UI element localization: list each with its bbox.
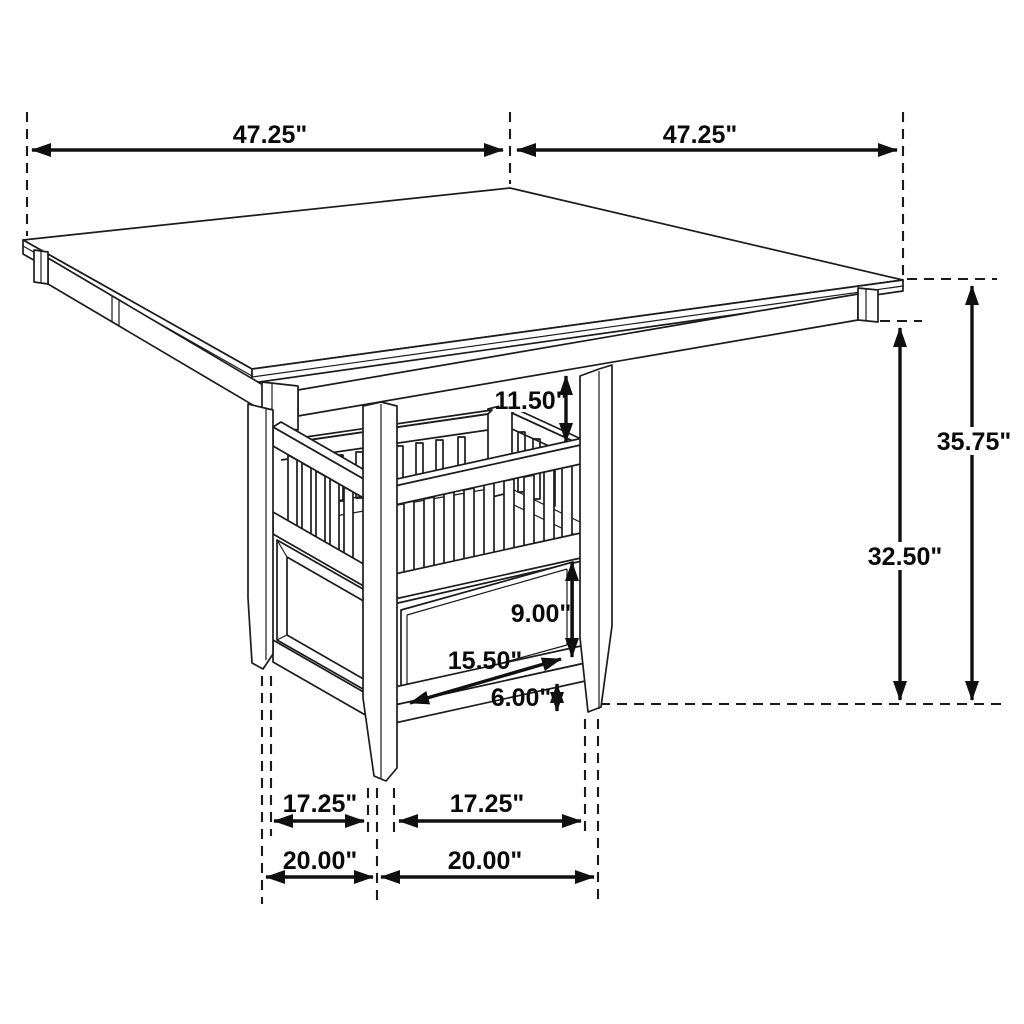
dim-label-overall-height: 35.75" [937,428,1011,456]
leg-right [580,365,612,712]
dim-label-apron-clearance: 32.50" [868,543,942,571]
leg-front [363,402,397,781]
dim-label-foot-inner-right: 17.25" [450,790,524,818]
dim-label-top-width-right: 47.25" [663,121,737,149]
dimension-diagram-page: 47.25" 47.25" 35.75" 32.50" 11.50" 9.00"… [0,0,1024,1024]
dim-label-shelf-opening: 11.50" [494,387,567,415]
dim-label-foot-outer-right: 20.00" [448,847,522,875]
table-dimension-diagram: 47.25" 47.25" 35.75" 32.50" 11.50" 9.00"… [0,0,1024,1024]
dim-label-bottom-clearance: 6.00" [491,684,552,712]
tabletop [23,188,903,383]
dim-label-drawer-height: 9.00" [511,600,572,628]
dim-label-top-width-left: 47.25" [233,121,307,149]
dim-label-drawer-width: 15.50" [448,647,522,675]
apron-right-cap [858,288,878,322]
dim-label-foot-outer-left: 20.00" [283,847,357,875]
dim-label-foot-inner-left: 17.25" [283,790,357,818]
leg-left [248,404,273,669]
